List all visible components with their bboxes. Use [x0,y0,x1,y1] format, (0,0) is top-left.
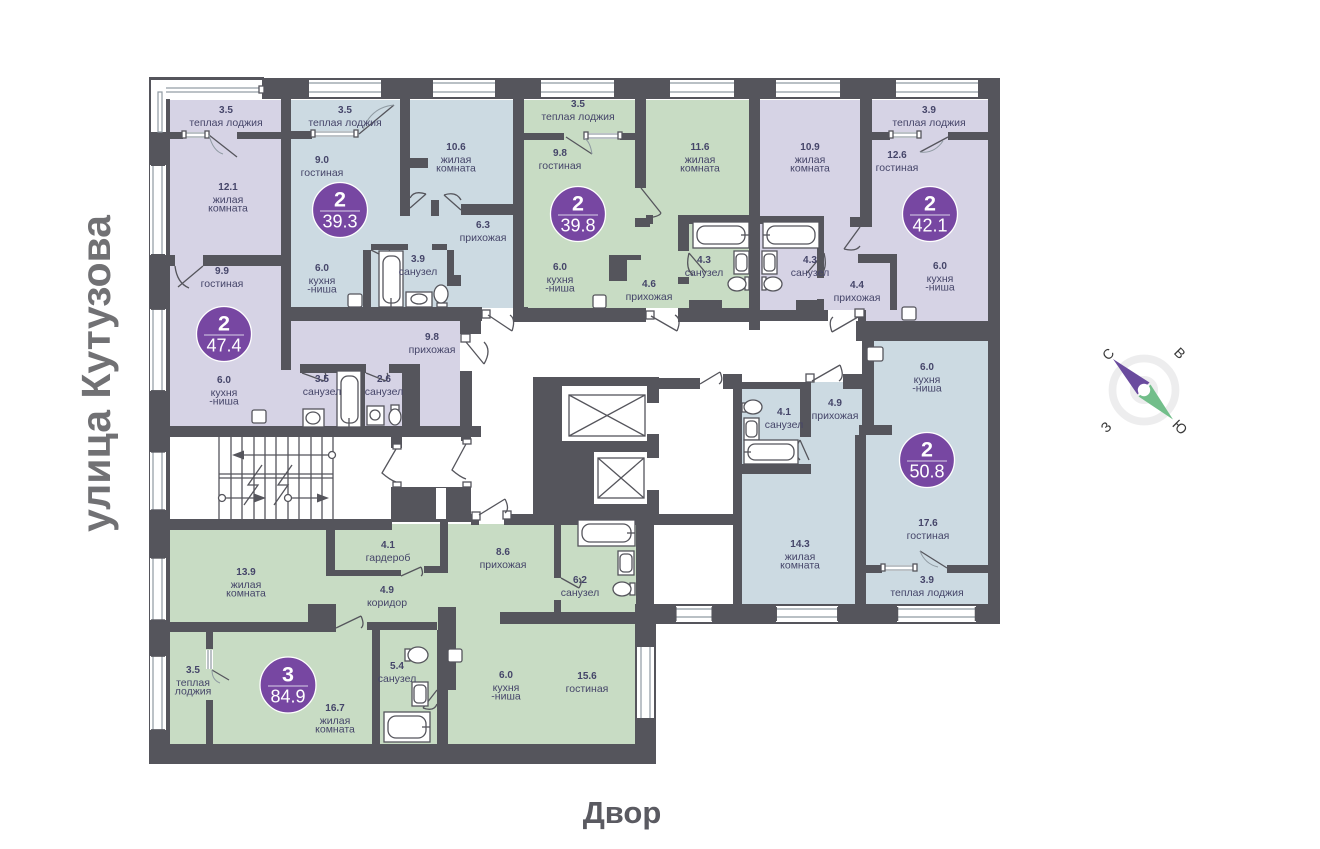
svg-text:санузел: санузел [365,386,403,398]
svg-text:6.0: 6.0 [315,263,329,274]
svg-text:санузел: санузел [561,587,599,599]
svg-text:3.9: 3.9 [411,254,425,265]
svg-text:6.3: 6.3 [476,220,490,231]
svg-text:17.6: 17.6 [918,518,938,529]
svg-text:9.8: 9.8 [553,148,567,159]
svg-text:гардероб: гардероб [366,552,411,564]
svg-text:6.0: 6.0 [553,262,567,273]
svg-text:2: 2 [921,438,933,462]
svg-text:15.6: 15.6 [577,671,597,682]
svg-text:4.3: 4.3 [803,255,817,266]
svg-text:прихожая: прихожая [834,292,881,304]
svg-text:12.6: 12.6 [887,150,907,161]
svg-text:16.7: 16.7 [325,703,345,714]
svg-text:50.8: 50.8 [909,462,944,482]
svg-text:3: 3 [282,663,294,687]
svg-text:санузел: санузел [765,419,803,431]
svg-text:9.9: 9.9 [215,266,229,277]
svg-text:теплая лоджия: теплая лоджия [890,587,963,599]
svg-text:-ниша: -ниша [491,691,521,703]
svg-text:3.5: 3.5 [571,99,585,110]
svg-text:-ниша: -ниша [307,284,337,296]
svg-text:прихожая: прихожая [409,344,456,356]
svg-text:Двор: Двор [583,795,662,830]
svg-text:санузел: санузел [791,267,829,279]
svg-text:4.4: 4.4 [850,280,864,291]
svg-text:санузел: санузел [303,386,341,398]
svg-text:6.0: 6.0 [933,261,947,272]
svg-text:4.1: 4.1 [381,540,395,551]
svg-text:3.5: 3.5 [338,105,352,116]
svg-text:3.5: 3.5 [315,374,329,385]
svg-text:2: 2 [572,192,584,216]
svg-text:3.9: 3.9 [920,575,934,586]
svg-text:4.9: 4.9 [380,585,394,596]
svg-text:комната: комната [436,163,476,175]
svg-text:47.4: 47.4 [206,336,241,356]
svg-text:9.8: 9.8 [425,332,439,343]
svg-text:теплая лоджия: теплая лоджия [541,111,614,123]
svg-text:14.3: 14.3 [790,539,810,550]
svg-text:42.1: 42.1 [912,216,947,236]
svg-text:комната: комната [315,724,355,736]
svg-text:2: 2 [218,312,230,336]
svg-text:3.5: 3.5 [219,105,233,116]
svg-text:санузел: санузел [399,266,437,278]
svg-text:4.3: 4.3 [697,255,711,266]
svg-text:прихожая: прихожая [626,291,673,303]
svg-text:гостиная: гостиная [201,278,244,290]
svg-text:коридор: коридор [367,597,407,609]
svg-text:комната: комната [680,163,720,175]
svg-text:13.9: 13.9 [236,567,256,578]
svg-text:5.4: 5.4 [390,661,404,672]
svg-text:6.0: 6.0 [920,362,934,373]
svg-text:комната: комната [208,203,248,215]
svg-text:гостиная: гостиная [539,160,582,172]
svg-text:84.9: 84.9 [270,687,305,707]
svg-text:гостиная: гостиная [876,162,919,174]
svg-text:-ниша: -ниша [209,396,239,408]
svg-text:прихожая: прихожая [812,410,859,422]
svg-text:6.2: 6.2 [573,575,587,586]
svg-text:4.6: 4.6 [642,279,656,290]
svg-text:10.9: 10.9 [800,142,820,153]
svg-text:-ниша: -ниша [925,282,955,294]
svg-text:прихожая: прихожая [480,559,527,571]
svg-text:2: 2 [334,188,346,212]
svg-text:гостиная: гостиная [301,167,344,179]
svg-text:2: 2 [924,192,936,216]
svg-text:11.6: 11.6 [691,142,710,153]
svg-text:-ниша: -ниша [912,383,942,395]
svg-text:2.6: 2.6 [377,374,391,385]
svg-text:гостиная: гостиная [907,530,950,542]
svg-text:10.6: 10.6 [446,142,466,153]
svg-text:теплая лоджия: теплая лоджия [308,117,381,129]
svg-text:6.0: 6.0 [217,375,231,386]
svg-text:комната: комната [790,163,830,175]
svg-text:гостиная: гостиная [566,683,609,695]
svg-text:комната: комната [226,588,266,600]
svg-text:лоджия: лоджия [175,686,212,698]
svg-text:прихожая: прихожая [460,232,507,244]
svg-text:-ниша: -ниша [545,283,575,295]
svg-text:3.9: 3.9 [922,105,936,116]
svg-text:3.5: 3.5 [186,665,200,676]
svg-text:12.1: 12.1 [218,182,238,193]
svg-text:теплая лоджия: теплая лоджия [892,117,965,129]
svg-text:4.9: 4.9 [828,398,842,409]
svg-text:8.6: 8.6 [496,547,510,558]
svg-text:санузел: санузел [685,267,723,279]
svg-text:теплая лоджия: теплая лоджия [189,117,262,129]
svg-text:санузел: санузел [378,673,416,685]
svg-text:9.0: 9.0 [315,155,329,166]
svg-text:6.0: 6.0 [499,670,513,681]
svg-text:комната: комната [780,560,820,572]
svg-text:39.8: 39.8 [560,216,595,236]
svg-text:39.3: 39.3 [322,212,357,232]
svg-text:4.1: 4.1 [777,407,791,418]
svg-text:улица Кутузова: улица Кутузова [73,214,119,532]
